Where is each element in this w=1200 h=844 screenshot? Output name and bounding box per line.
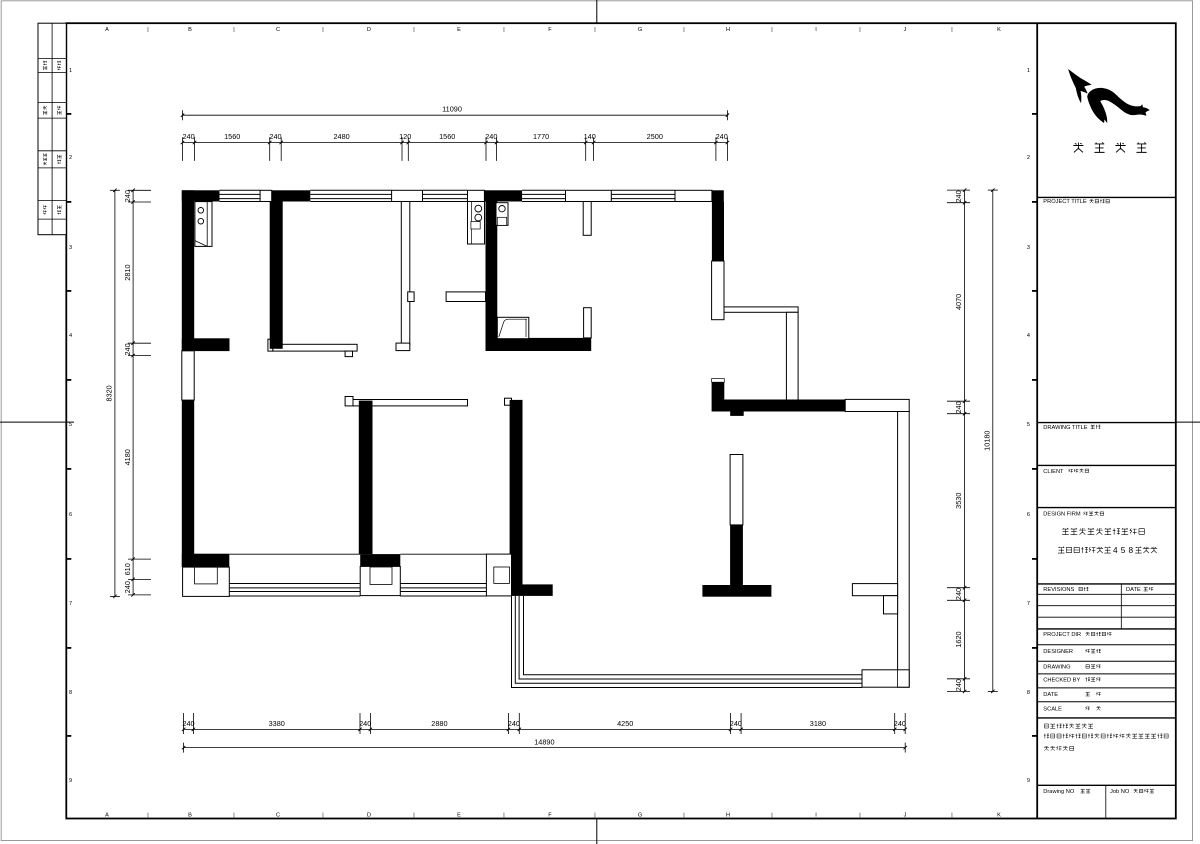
svg-text:E: E bbox=[457, 813, 461, 819]
svg-text:2880: 2880 bbox=[431, 719, 447, 728]
svg-text:240: 240 bbox=[954, 679, 963, 691]
svg-text:G: G bbox=[638, 813, 642, 819]
svg-text:C: C bbox=[276, 813, 280, 819]
svg-text:D: D bbox=[367, 27, 371, 33]
svg-text:DESIGN FIRM: DESIGN FIRM bbox=[1043, 512, 1081, 518]
svg-text:DRAWING TITLE: DRAWING TITLE bbox=[1043, 425, 1087, 431]
svg-text:DATE: DATE bbox=[1043, 692, 1058, 698]
svg-text:240: 240 bbox=[182, 719, 194, 728]
svg-text:240: 240 bbox=[269, 132, 281, 141]
svg-text:240: 240 bbox=[183, 132, 195, 141]
svg-text:4: 4 bbox=[69, 333, 72, 339]
svg-text:|: | bbox=[771, 27, 772, 33]
svg-text:H: H bbox=[726, 813, 730, 819]
svg-text:A: A bbox=[105, 27, 109, 33]
svg-text:5: 5 bbox=[1121, 545, 1126, 555]
svg-text:1: 1 bbox=[1027, 68, 1030, 74]
svg-text:120: 120 bbox=[399, 132, 411, 141]
svg-text:|: | bbox=[322, 813, 323, 819]
svg-text:4180: 4180 bbox=[123, 449, 132, 465]
svg-text:11090: 11090 bbox=[442, 105, 462, 114]
svg-text:5: 5 bbox=[1027, 422, 1030, 428]
svg-text:|: | bbox=[503, 813, 504, 819]
svg-text:240: 240 bbox=[954, 190, 963, 202]
svg-text:|: | bbox=[147, 813, 148, 819]
svg-text:|: | bbox=[683, 27, 684, 33]
svg-text:|: | bbox=[322, 27, 323, 33]
svg-text:3380: 3380 bbox=[269, 719, 285, 728]
svg-text:F: F bbox=[548, 813, 552, 819]
svg-text:8: 8 bbox=[1027, 690, 1030, 696]
svg-text:|: | bbox=[951, 27, 952, 33]
svg-text:240: 240 bbox=[508, 719, 520, 728]
svg-text:SCALE: SCALE bbox=[1043, 706, 1062, 712]
svg-text:7: 7 bbox=[69, 601, 72, 607]
svg-text:240: 240 bbox=[123, 581, 132, 593]
svg-text:K: K bbox=[997, 813, 1001, 819]
svg-text:2: 2 bbox=[1027, 155, 1030, 161]
svg-text:7: 7 bbox=[1027, 601, 1030, 607]
svg-text:REVISIONS: REVISIONS bbox=[1043, 587, 1074, 593]
svg-text:E: E bbox=[457, 27, 461, 33]
svg-text:A: A bbox=[105, 813, 109, 819]
svg-text:1560: 1560 bbox=[224, 132, 240, 141]
svg-text:CLIENT: CLIENT bbox=[1043, 469, 1064, 475]
svg-text:9: 9 bbox=[69, 778, 72, 784]
svg-text:140: 140 bbox=[584, 132, 596, 141]
svg-text:6: 6 bbox=[1027, 512, 1030, 518]
svg-text:3530: 3530 bbox=[954, 493, 963, 509]
svg-text:4: 4 bbox=[1113, 545, 1118, 555]
svg-text:8320: 8320 bbox=[105, 385, 114, 401]
svg-text:F: F bbox=[548, 27, 552, 33]
svg-text:1620: 1620 bbox=[954, 631, 963, 647]
svg-text:K: K bbox=[997, 27, 1001, 33]
svg-text:Job NO: Job NO bbox=[1110, 789, 1130, 795]
svg-text:9: 9 bbox=[1027, 778, 1030, 784]
svg-text:J: J bbox=[904, 27, 907, 33]
svg-text:|: | bbox=[233, 27, 234, 33]
svg-text:J: J bbox=[904, 813, 907, 819]
svg-text:H: H bbox=[726, 27, 730, 33]
svg-text:1560: 1560 bbox=[439, 132, 455, 141]
svg-text:2500: 2500 bbox=[647, 132, 663, 141]
svg-text:DATE: DATE bbox=[1126, 587, 1141, 593]
svg-text:|: | bbox=[503, 27, 504, 33]
svg-text:|: | bbox=[413, 27, 414, 33]
svg-text:1770: 1770 bbox=[533, 132, 549, 141]
svg-text:B: B bbox=[188, 813, 192, 819]
svg-text:6: 6 bbox=[69, 512, 72, 518]
svg-text:240: 240 bbox=[894, 719, 906, 728]
svg-text:8: 8 bbox=[1128, 545, 1133, 555]
svg-text:|: | bbox=[413, 813, 414, 819]
svg-text:CHECKED BY: CHECKED BY bbox=[1043, 677, 1080, 683]
svg-text:5: 5 bbox=[69, 422, 72, 428]
svg-text:3180: 3180 bbox=[810, 719, 826, 728]
svg-text:|: | bbox=[147, 27, 148, 33]
svg-text:|: | bbox=[594, 27, 595, 33]
svg-text:PROJECT DIR: PROJECT DIR bbox=[1043, 632, 1081, 638]
svg-text:PROJECT TITLE: PROJECT TITLE bbox=[1043, 199, 1087, 205]
svg-text:|: | bbox=[859, 813, 860, 819]
svg-text:240: 240 bbox=[954, 588, 963, 600]
svg-text:240: 240 bbox=[359, 719, 371, 728]
svg-text:4070: 4070 bbox=[954, 294, 963, 310]
svg-text:2810: 2810 bbox=[123, 264, 132, 280]
svg-text:C: C bbox=[276, 27, 280, 33]
svg-text:3: 3 bbox=[69, 245, 72, 251]
svg-text:|: | bbox=[951, 813, 952, 819]
svg-text:1: 1 bbox=[69, 68, 72, 74]
svg-text:|: | bbox=[771, 813, 772, 819]
svg-text:4: 4 bbox=[1027, 333, 1030, 339]
svg-text:240: 240 bbox=[123, 190, 132, 202]
svg-text:2480: 2480 bbox=[333, 132, 349, 141]
svg-text:|: | bbox=[594, 813, 595, 819]
svg-text:Drawing NO: Drawing NO bbox=[1043, 789, 1075, 795]
svg-text:240: 240 bbox=[954, 401, 963, 413]
svg-text:240: 240 bbox=[485, 132, 497, 141]
svg-text:8: 8 bbox=[69, 690, 72, 696]
svg-text:|: | bbox=[859, 27, 860, 33]
svg-text:4250: 4250 bbox=[617, 719, 633, 728]
svg-text:DRAWING: DRAWING bbox=[1043, 664, 1070, 670]
svg-text:10180: 10180 bbox=[982, 431, 991, 451]
svg-text:240: 240 bbox=[730, 719, 742, 728]
svg-text:3: 3 bbox=[1027, 245, 1030, 251]
svg-text:240: 240 bbox=[123, 343, 132, 355]
svg-text:|: | bbox=[233, 813, 234, 819]
svg-text:|: | bbox=[683, 813, 684, 819]
svg-text:G: G bbox=[638, 27, 642, 33]
svg-text:240: 240 bbox=[716, 132, 728, 141]
svg-text:D: D bbox=[367, 813, 371, 819]
svg-text:DESIGNER: DESIGNER bbox=[1043, 649, 1073, 655]
svg-text:2: 2 bbox=[69, 155, 72, 161]
svg-text:610: 610 bbox=[123, 563, 132, 575]
svg-text:14890: 14890 bbox=[534, 737, 554, 746]
svg-text:B: B bbox=[188, 27, 192, 33]
